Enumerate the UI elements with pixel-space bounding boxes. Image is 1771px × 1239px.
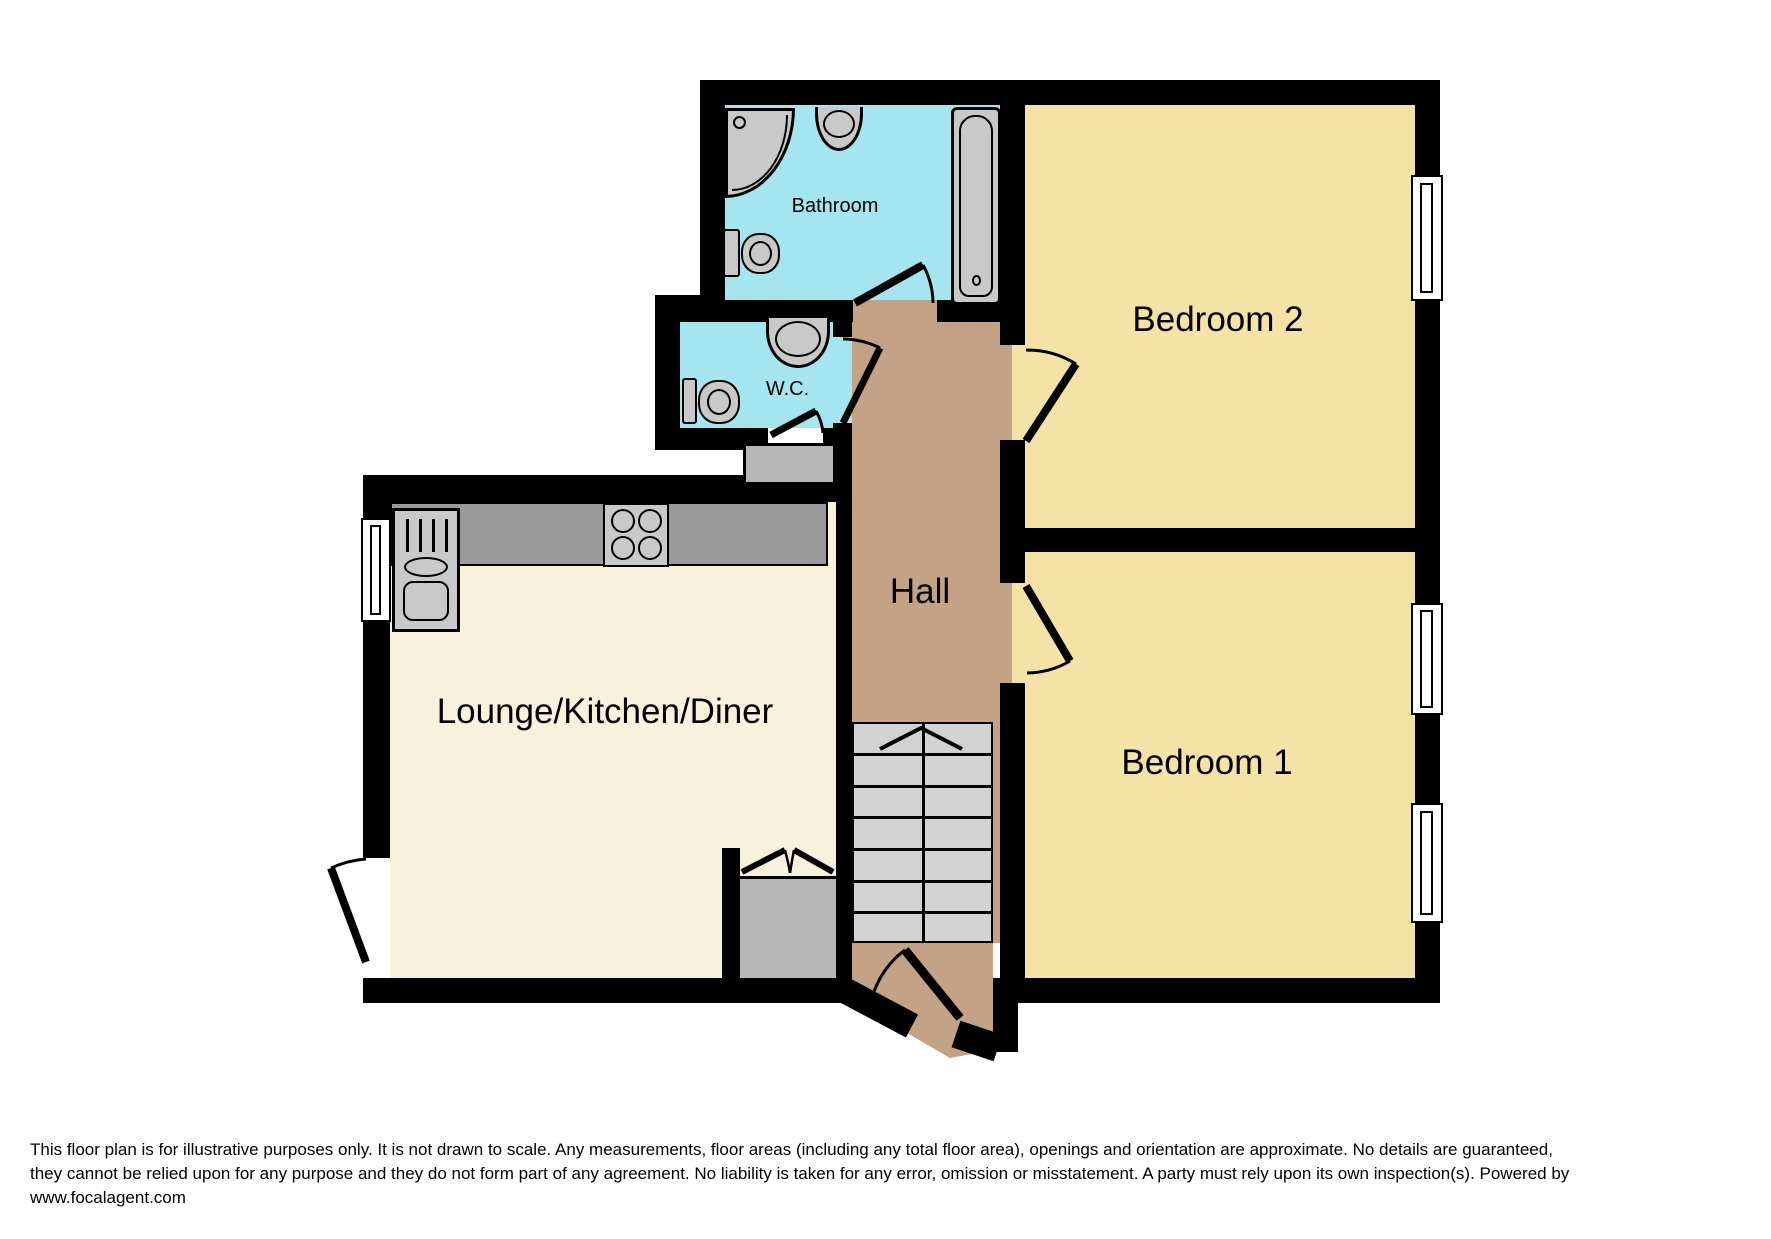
window-sash	[370, 525, 382, 615]
wc-label: W.C.	[735, 378, 840, 401]
wall	[363, 978, 855, 1003]
staircase	[852, 722, 993, 943]
wall	[836, 443, 852, 978]
angled-wall	[956, 1034, 998, 1048]
toilet-bowl-inner	[749, 241, 772, 266]
window-sash	[1420, 183, 1433, 293]
cupboard	[740, 876, 836, 978]
disclaimer-line: www.focalagent.com	[30, 1186, 1755, 1210]
wall	[993, 978, 1018, 1052]
kitchen-hob	[603, 503, 669, 567]
bathtub-drain	[972, 275, 981, 286]
bathroom-label: Bathroom	[760, 195, 910, 218]
stair-center-line	[922, 724, 925, 941]
window	[361, 518, 391, 622]
kitchen-sink-unit	[392, 508, 460, 632]
entrance-door-arc	[872, 950, 905, 998]
sink-main-bowl	[403, 581, 449, 621]
bathroom-toilet-bowl	[741, 233, 780, 274]
bathtub	[951, 107, 1001, 305]
window	[1411, 603, 1443, 715]
bedroom1-label: Bedroom 1	[1057, 743, 1357, 783]
basin-bowl	[823, 110, 855, 138]
bathtub-inner	[959, 115, 993, 297]
window-sash	[1420, 811, 1433, 915]
hob-burner	[638, 509, 662, 533]
draining-board-line	[419, 519, 422, 552]
wall	[1000, 80, 1025, 345]
disclaimer-line: they cannot be relied upon for any purpo…	[30, 1162, 1755, 1186]
draining-board-line	[432, 519, 435, 552]
sink-small-bowl	[404, 557, 448, 577]
toilet-bowl-inner	[707, 389, 731, 415]
lounge-external-door-leaf	[331, 868, 366, 962]
wall	[1000, 683, 1025, 978]
angled-wall	[846, 991, 912, 1026]
window	[1411, 175, 1443, 301]
window-sash	[1420, 610, 1433, 707]
lounge-label: Lounge/Kitchen/Diner	[395, 692, 815, 732]
wall	[722, 848, 740, 978]
wall	[700, 80, 725, 320]
bedroom2-label: Bedroom 2	[1068, 300, 1368, 340]
wall	[833, 423, 852, 443]
hall-label: Hall	[860, 572, 980, 612]
bathroom-toilet-cistern	[723, 229, 740, 277]
wc-toilet-cistern	[682, 378, 697, 424]
draining-board-line	[445, 519, 448, 552]
shower-head	[733, 116, 746, 129]
wall	[1000, 440, 1025, 583]
cupboard	[743, 443, 836, 485]
hob-burner	[611, 509, 635, 533]
lounge-external-door-arc	[331, 859, 366, 868]
basin-bowl	[775, 321, 821, 357]
disclaimer: This floor plan is for illustrative purp…	[30, 1138, 1755, 1210]
draining-board-line	[406, 519, 409, 552]
wall	[1025, 528, 1415, 552]
entrance-door-leaf	[905, 950, 960, 1018]
hob-burner	[638, 536, 662, 560]
wall	[700, 80, 1440, 105]
hob-burner	[611, 536, 635, 560]
wc-toilet-bowl	[698, 380, 740, 424]
wall	[833, 322, 852, 337]
entrance-vestibule-floor	[852, 943, 993, 1058]
wall	[655, 295, 680, 450]
floor-plan: Bathroom W.C. Bedroom 2 Bedroom 1 Hall L…	[0, 0, 1771, 1239]
wall	[1005, 978, 1440, 1003]
disclaimer-line: This floor plan is for illustrative purp…	[30, 1138, 1755, 1162]
window	[1411, 803, 1443, 923]
